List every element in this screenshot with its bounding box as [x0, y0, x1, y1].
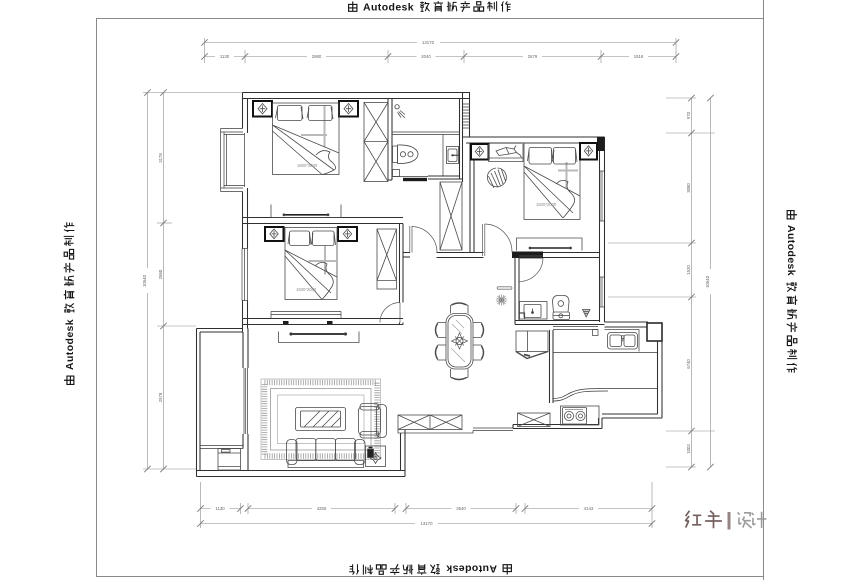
svg-text:1520: 1520 — [686, 265, 691, 275]
svg-text:1519: 1519 — [634, 54, 644, 59]
svg-text:10540: 10540 — [142, 274, 147, 287]
svg-text:6740: 6740 — [686, 359, 691, 369]
svg-text:13170: 13170 — [422, 40, 435, 45]
svg-text:2980: 2980 — [312, 54, 322, 59]
svg-text:1130: 1130 — [220, 54, 230, 59]
svg-text:1003: 1003 — [686, 444, 691, 454]
svg-text:13170: 13170 — [421, 521, 434, 526]
svg-text:10540: 10540 — [705, 275, 710, 288]
svg-text:1500*2000: 1500*2000 — [296, 287, 317, 292]
svg-text:970: 970 — [686, 111, 691, 119]
svg-text:2978: 2978 — [158, 392, 163, 402]
svg-text:2040: 2040 — [421, 54, 431, 59]
svg-text:3178: 3178 — [158, 153, 163, 163]
svg-text:1130: 1130 — [215, 506, 225, 511]
svg-text:1500*2000: 1500*2000 — [536, 202, 557, 207]
svg-text:2679: 2679 — [528, 54, 538, 59]
svg-text:4250: 4250 — [317, 506, 327, 511]
svg-text:2860: 2860 — [158, 269, 163, 279]
svg-text:1800*2000: 1800*2000 — [297, 163, 318, 168]
svg-text:4143: 4143 — [584, 506, 594, 511]
svg-text:3540: 3540 — [456, 506, 466, 511]
svg-text:3080: 3080 — [686, 183, 691, 193]
